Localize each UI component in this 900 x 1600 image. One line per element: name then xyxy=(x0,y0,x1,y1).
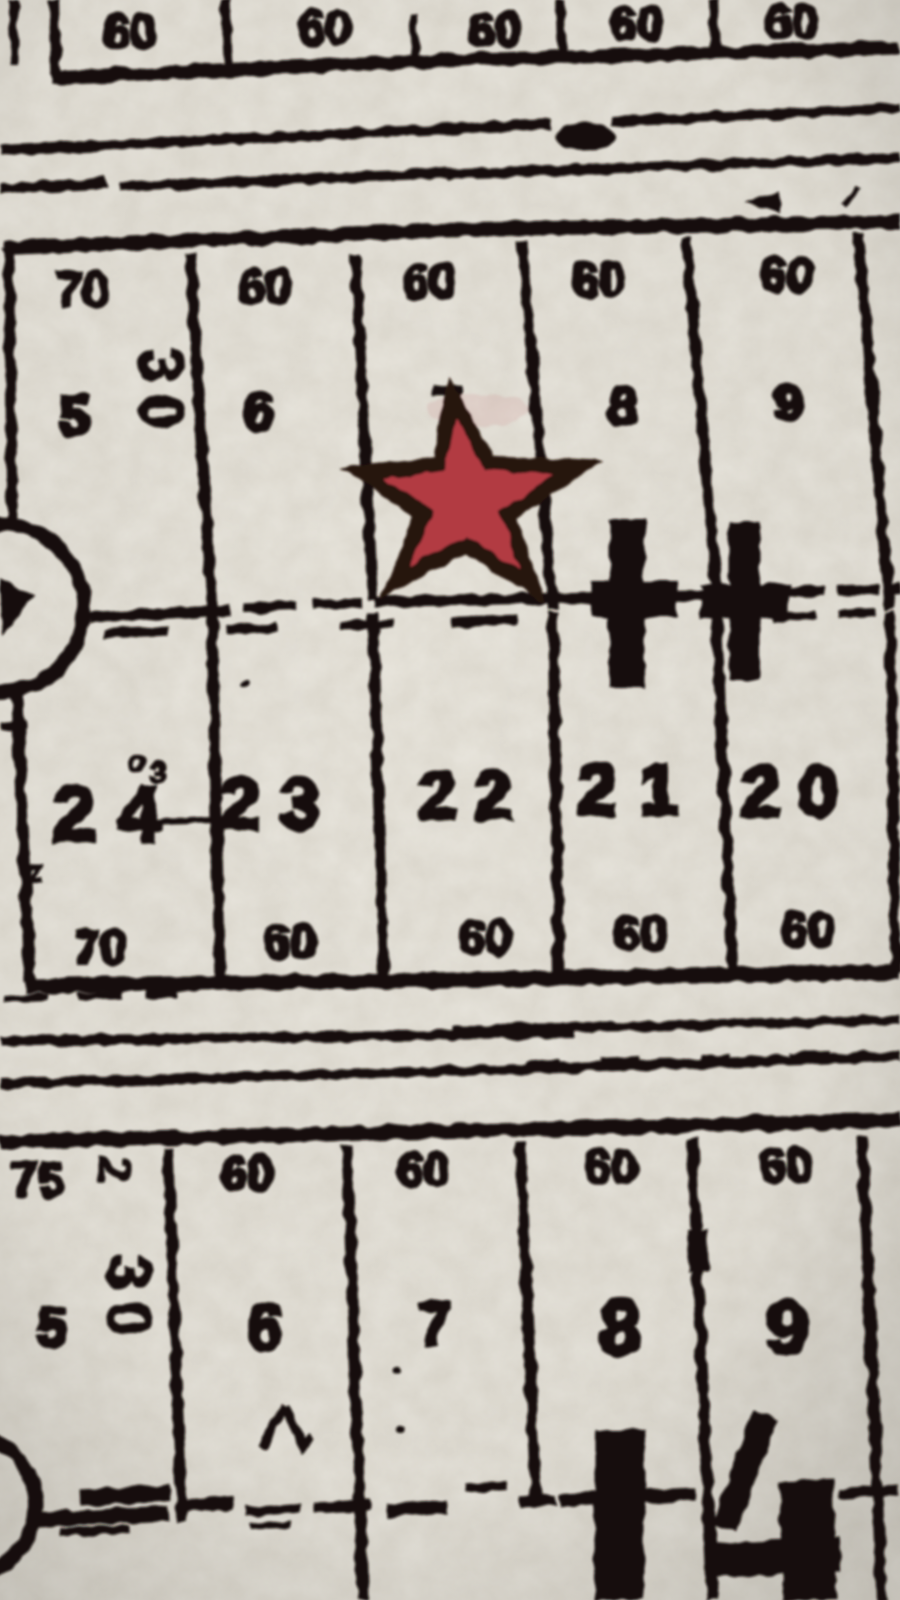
svg-text:60: 60 xyxy=(468,4,521,57)
svg-text:60: 60 xyxy=(572,254,625,307)
svg-text:60: 60 xyxy=(613,908,666,961)
svg-text:60: 60 xyxy=(759,1140,812,1193)
svg-text:30: 30 xyxy=(126,348,195,441)
svg-text:60: 60 xyxy=(610,0,663,51)
svg-text:8: 8 xyxy=(608,377,638,437)
svg-text:60: 60 xyxy=(458,912,511,965)
svg-text:60: 60 xyxy=(402,255,455,308)
svg-text:23: 23 xyxy=(220,764,340,844)
svg-text:75: 75 xyxy=(11,1154,64,1207)
svg-text:7: 7 xyxy=(418,1290,451,1357)
svg-text:2: 2 xyxy=(87,1156,140,1183)
svg-text:60: 60 xyxy=(765,0,818,49)
svg-text:70: 70 xyxy=(55,263,108,316)
svg-text:21: 21 xyxy=(577,750,701,830)
svg-text:3: 3 xyxy=(150,756,167,789)
svg-text:60: 60 xyxy=(781,904,834,957)
svg-text:22: 22 xyxy=(418,757,530,833)
svg-text:70: 70 xyxy=(73,922,126,975)
svg-text:5: 5 xyxy=(59,384,90,447)
svg-text:8: 8 xyxy=(599,1286,641,1371)
svg-text:z: z xyxy=(28,856,43,889)
svg-text:60: 60 xyxy=(238,261,291,314)
svg-text:60: 60 xyxy=(220,1148,273,1201)
svg-text:60: 60 xyxy=(397,1144,450,1197)
svg-text:30: 30 xyxy=(94,1255,163,1348)
svg-text:60: 60 xyxy=(263,916,316,969)
svg-text:60: 60 xyxy=(298,2,351,55)
svg-text:60: 60 xyxy=(584,1141,637,1194)
svg-text:9: 9 xyxy=(775,375,803,431)
svg-text:6: 6 xyxy=(247,1290,284,1364)
svg-text:9: 9 xyxy=(766,1286,808,1371)
svg-text:o: o xyxy=(128,746,146,779)
svg-text:20: 20 xyxy=(740,752,856,832)
svg-text:60: 60 xyxy=(760,249,813,302)
svg-text:6: 6 xyxy=(244,382,274,442)
svg-text:60: 60 xyxy=(103,6,156,59)
svg-text:5: 5 xyxy=(37,1297,67,1357)
